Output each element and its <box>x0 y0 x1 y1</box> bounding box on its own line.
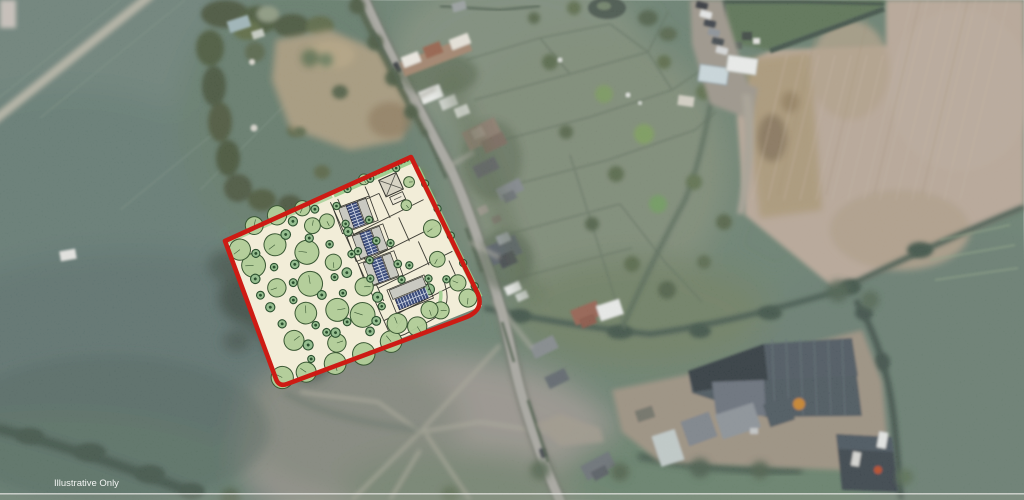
svg-text:Illustrative Only: Illustrative Only <box>54 478 119 489</box>
